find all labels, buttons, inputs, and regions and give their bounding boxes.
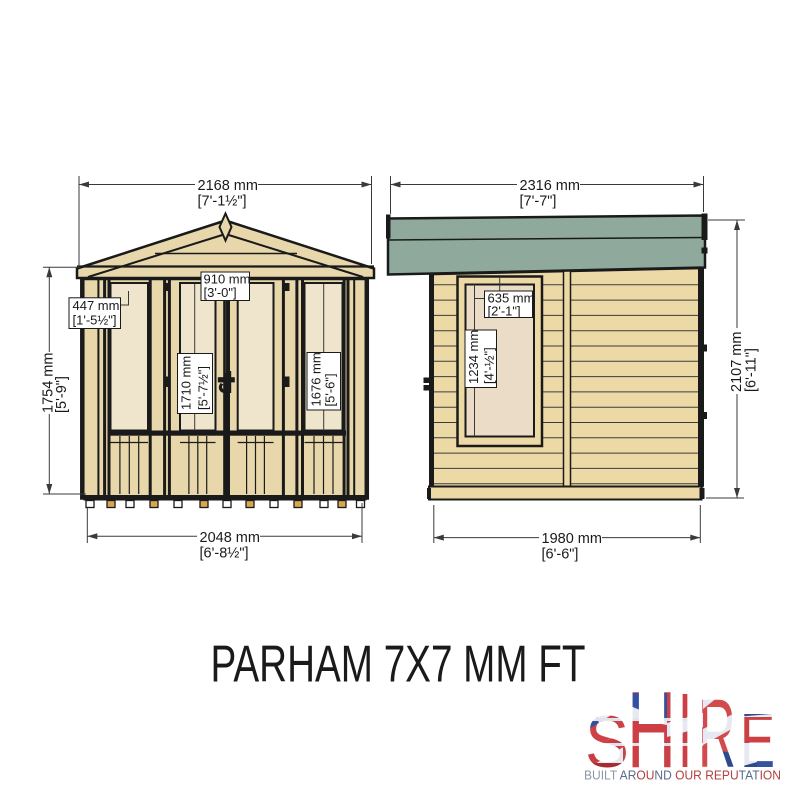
svg-text:[5'-6"]: [5'-6"] <box>323 373 338 406</box>
svg-text:[3'-0"]: [3'-0"] <box>204 285 237 300</box>
svg-text:1234 mm: 1234 mm <box>466 330 481 384</box>
svg-text:BUILT AROUND OUR REPUTATION: BUILT AROUND OUR REPUTATION <box>584 768 781 783</box>
svg-text:[7'-1½"]: [7'-1½"] <box>198 194 247 210</box>
svg-text:[5'-9"]: [5'-9"] <box>54 376 70 413</box>
svg-text:2316 mm: 2316 mm <box>520 178 580 194</box>
svg-text:[6'-8½"]: [6'-8½"] <box>200 546 249 562</box>
svg-text:1676 mm: 1676 mm <box>309 352 324 406</box>
svg-text:2048 mm: 2048 mm <box>200 530 260 546</box>
svg-text:[7'-7"]: [7'-7"] <box>520 194 557 210</box>
svg-text:[6'-11"]: [6'-11"] <box>744 348 760 392</box>
svg-text:2168 mm: 2168 mm <box>198 178 258 194</box>
svg-text:[2'-1"]: [2'-1"] <box>488 304 521 319</box>
svg-text:1980 mm: 1980 mm <box>542 531 602 547</box>
svg-text:1710 mm: 1710 mm <box>179 356 194 410</box>
svg-text:[6'-6"]: [6'-6"] <box>542 547 579 563</box>
svg-text:[4'-½"]: [4'-½"] <box>482 347 497 384</box>
svg-text:447 mm: 447 mm <box>73 298 120 313</box>
svg-text:[5'-7½"]: [5'-7½"] <box>196 366 211 410</box>
svg-text:PARHAM 7X7 MM FT: PARHAM 7X7 MM FT <box>211 636 586 694</box>
svg-text:[1'-5½"]: [1'-5½"] <box>73 313 117 328</box>
